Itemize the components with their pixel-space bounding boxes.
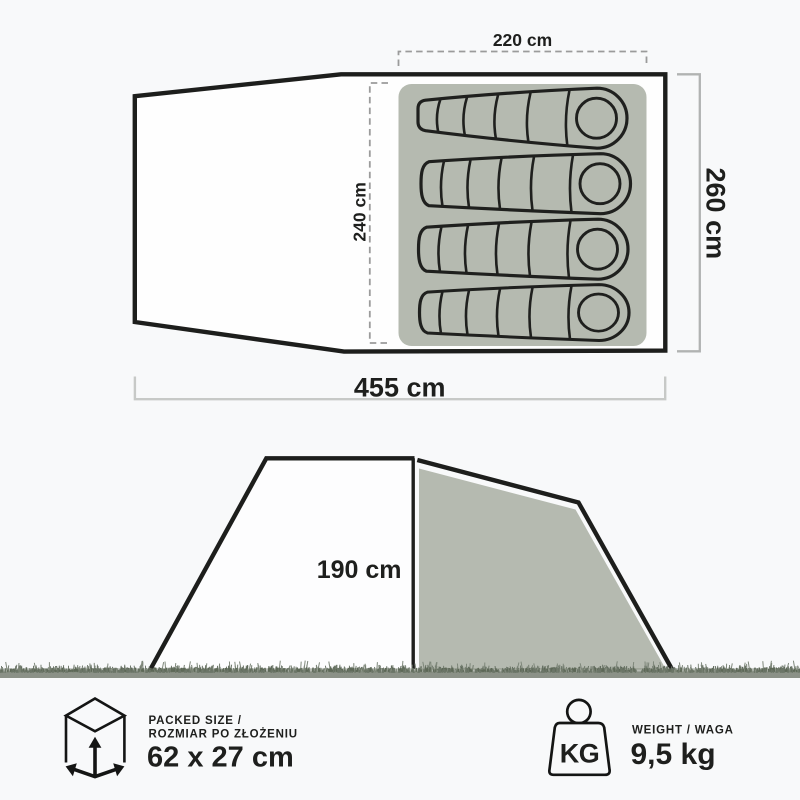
svg-text:PACKED SIZE /: PACKED SIZE /	[149, 715, 242, 727]
svg-text:190 cm: 190 cm	[317, 556, 402, 584]
svg-text:ROZMIAR PO ZŁOŻENIU: ROZMIAR PO ZŁOŻENIU	[149, 728, 298, 741]
svg-text:62 x 27 cm: 62 x 27 cm	[147, 742, 294, 774]
svg-text:KG: KG	[560, 739, 600, 769]
svg-text:240 cm: 240 cm	[349, 182, 369, 241]
svg-text:220 cm: 220 cm	[493, 30, 552, 50]
svg-text:9,5 kg: 9,5 kg	[631, 738, 716, 771]
svg-text:WEIGHT / WAGA: WEIGHT / WAGA	[632, 725, 734, 737]
svg-text:260 cm: 260 cm	[700, 168, 730, 260]
svg-text:455 cm: 455 cm	[354, 373, 446, 403]
